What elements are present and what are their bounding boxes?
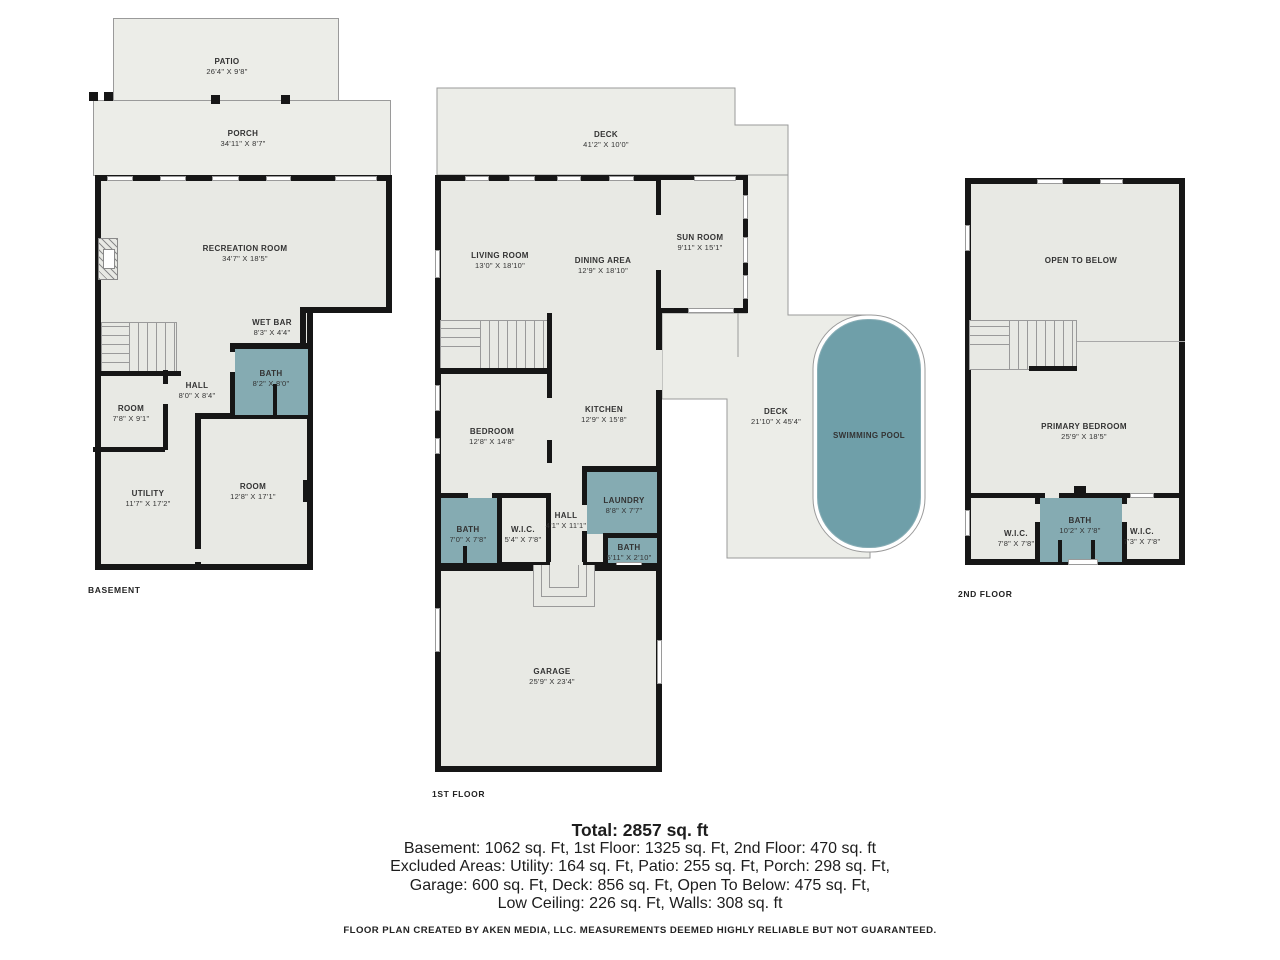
second-bath-label: BATH10'2" X 7'8": [1059, 516, 1100, 536]
door-opening: [1122, 504, 1127, 522]
room-name: BEDROOM: [470, 427, 514, 436]
window-marker: [160, 176, 186, 181]
room-name: BATH: [617, 543, 640, 552]
window-marker: [743, 237, 748, 263]
room-name: PRIMARY BEDROOM: [1041, 422, 1127, 431]
stair-landing: [970, 321, 1009, 345]
garage-label: GARAGE25'9" X 23'4": [529, 667, 575, 687]
window-marker: [965, 225, 970, 251]
wall-segment: [95, 371, 181, 376]
door-opening: [163, 384, 168, 404]
window-marker: [435, 608, 440, 652]
sun-room-label: SUN ROOM9'11" X 15'1": [677, 233, 724, 253]
room-dims: 8'2" X 8'0": [253, 379, 290, 389]
window-marker: [1130, 493, 1154, 498]
wall-segment: [497, 493, 502, 565]
room-name: RECREATION ROOM: [203, 244, 288, 253]
room-name: UTILITY: [132, 489, 165, 498]
stair-landing: [102, 323, 129, 372]
floor-plan-canvas: PATIO26'4" X 9'8" PORCH34'11" X 8'7" REC…: [0, 0, 1280, 960]
room-dims: 7'3" X 7'8": [1124, 537, 1161, 547]
primary-bedroom-label: PRIMARY BEDROOM25'9" X 18'5": [1041, 422, 1127, 442]
room-name: W.I.C.: [1130, 527, 1154, 536]
room-name: DECK: [764, 407, 788, 416]
room-dims: 10'2" X 7'8": [1059, 526, 1100, 536]
window-marker: [1068, 559, 1098, 565]
door-opening: [656, 350, 662, 390]
room-dims: 25'9" X 23'4": [529, 677, 575, 687]
window-marker: [266, 176, 291, 181]
window-marker: [212, 176, 239, 181]
summary-total: Total: 2857 sq. ft: [0, 821, 1280, 840]
basement-room1-label: ROOM7'8" X 9'1": [113, 404, 150, 424]
stair-landing: [441, 321, 480, 347]
stair-treads: [480, 321, 547, 371]
deck-top-label: DECK41'2" X 10'0": [583, 130, 629, 150]
room-dims: 34'7" X 18'5": [203, 254, 288, 264]
window-marker: [107, 176, 133, 181]
wic-left-label: W.I.C.7'8" X 7'8": [998, 529, 1035, 549]
first-bath-label: BATH7'0" X 7'8": [450, 525, 487, 545]
wall-segment: [1029, 366, 1077, 371]
room-dims: 5'4" X 7'8": [505, 535, 542, 545]
bedroom-label: BEDROOM12'8" X 14'8": [469, 427, 515, 447]
window-marker: [557, 176, 581, 181]
window-marker: [657, 640, 662, 684]
room-dims: 7'8" X 7'8": [998, 539, 1035, 549]
room-name: BATH: [1068, 516, 1091, 525]
living-room-label: LIVING ROOM13'0" X 18'10": [471, 251, 529, 271]
first-bath2-label: BATH5'11" X 2'10": [606, 543, 651, 563]
summary-line: Low Ceiling: 226 sq. Ft, Walls: 308 sq. …: [0, 895, 1280, 913]
wall-segment: [303, 480, 313, 502]
room-dims: 26'4" X 9'8": [206, 67, 247, 77]
window-marker: [1037, 179, 1063, 184]
disclaimer-text: FLOOR PLAN CREATED BY AKEN MEDIA, LLC. M…: [0, 925, 1280, 936]
room-dims: 11'7" X 17'2": [125, 499, 170, 509]
dining-area-label: DINING AREA12'9" X 18'10": [575, 256, 631, 276]
door-opening: [547, 398, 552, 440]
kitchen-label: KITCHEN12'9" X 15'8": [581, 405, 627, 425]
basement-hall-label: HALL8'0" X 8'4": [179, 381, 216, 401]
room-name: BATH: [259, 369, 282, 378]
window-marker: [609, 176, 634, 181]
wall-segment: [547, 313, 552, 463]
wet-bar-label: WET BAR8'3" X 4'4": [252, 318, 292, 338]
room-dims: 12'9" X 15'8": [581, 415, 627, 425]
room-name: KITCHEN: [585, 405, 623, 414]
room-dims: 8'3" X 4'4": [252, 328, 292, 338]
room-dims: 25'9" X 18'5": [1041, 432, 1127, 442]
stair-treads: [1009, 321, 1076, 369]
basement-bath-label: BATH8'2" X 8'0": [253, 369, 290, 389]
room-name: SWIMMING POOL: [833, 431, 905, 440]
basement-room2-label: ROOM12'8" X 17'1": [230, 482, 276, 502]
wall-segment: [163, 370, 168, 450]
room-dims: 41'2" X 10'0": [583, 140, 629, 150]
wall-segment: [300, 307, 306, 349]
room-dims: 12'9" X 18'10": [575, 266, 631, 276]
room-dims: 12'8" X 14'8": [469, 437, 515, 447]
room-dims: 21'10" X 45'4": [751, 417, 801, 427]
window-marker: [435, 250, 440, 278]
utility-label: UTILITY11'7" X 17'2": [125, 489, 170, 509]
room-dims: 12'8" X 17'1": [230, 492, 276, 502]
first-hall-label: HALL4'1" X 11'1": [546, 511, 587, 531]
stair-treads: [129, 323, 176, 372]
summary-line: Garage: 600 sq. Ft, Deck: 856 sq. Ft, Op…: [0, 877, 1280, 895]
wic-right-label: W.I.C.7'3" X 7'8": [1124, 527, 1161, 547]
window-marker: [688, 308, 734, 313]
room-name: ROOM: [240, 482, 266, 491]
window-marker: [965, 510, 970, 536]
window-marker: [1100, 179, 1123, 184]
porch-post: [281, 95, 290, 104]
room-name: W.I.C.: [1004, 529, 1028, 538]
summary-line: Basement: 1062 sq. Ft, 1st Floor: 1325 s…: [0, 840, 1280, 858]
room-dims: 9'11" X 15'1": [677, 243, 724, 253]
room-dims: 5'11" X 2'10": [606, 553, 651, 563]
window-marker: [743, 195, 748, 219]
deck-right-label: DECK21'10" X 45'4": [751, 407, 801, 427]
room-name: LAUNDRY: [603, 496, 644, 505]
wall-segment: [463, 546, 467, 565]
room-name: BATH: [456, 525, 479, 534]
window-marker: [743, 275, 748, 299]
summary-block: Total: 2857 sq. ft Basement: 1062 sq. Ft…: [0, 821, 1280, 936]
window-marker: [694, 176, 736, 181]
porch-post: [89, 92, 98, 101]
room-dims: 7'0" X 7'8": [450, 535, 487, 545]
wall-segment: [1058, 540, 1062, 562]
patio-label: PATIO26'4" X 9'8": [206, 57, 247, 77]
room-name: WET BAR: [252, 318, 292, 327]
swimming-pool-label: SWIMMING POOL: [833, 431, 905, 441]
window-marker: [509, 176, 535, 181]
laundry-label: LAUNDRY8'8" X 7'7": [603, 496, 644, 516]
room-name: OPEN TO BELOW: [1045, 256, 1117, 265]
room-dims: 4'1" X 11'1": [546, 521, 587, 531]
room-name: PORCH: [228, 129, 259, 138]
room-dims: 8'0" X 8'4": [179, 391, 216, 401]
porch-post: [104, 92, 113, 101]
wall-segment: [1074, 486, 1086, 494]
open-floor-seam: [101, 305, 300, 315]
window-marker: [465, 176, 489, 181]
door-opening: [1035, 504, 1040, 522]
room-dims: 8'8" X 7'7": [603, 506, 644, 516]
window-marker: [435, 385, 440, 411]
porch-label: PORCH34'11" X 8'7": [220, 129, 265, 149]
first-floor-tag: 1ST FLOOR: [432, 789, 485, 799]
wall-segment: [437, 368, 550, 374]
room-name: ROOM: [118, 404, 144, 413]
room-name: LIVING ROOM: [471, 251, 529, 260]
room-name: GARAGE: [533, 667, 570, 676]
room-name: PATIO: [214, 57, 239, 66]
window-marker: [435, 438, 440, 454]
room-name: SUN ROOM: [677, 233, 724, 242]
open-to-below-label: OPEN TO BELOW: [1045, 256, 1117, 266]
room-name: HALL: [186, 381, 209, 390]
room-name: DINING AREA: [575, 256, 631, 265]
door-opening: [655, 215, 663, 270]
second-floor-tag: 2ND FLOOR: [958, 589, 1013, 599]
fireplace-box: [103, 249, 115, 269]
room-dims: 13'0" X 18'10": [471, 261, 529, 271]
porch-post: [211, 95, 220, 104]
room-name: DECK: [594, 130, 618, 139]
room-name: HALL: [555, 511, 578, 520]
basement-floor-tag: BASEMENT: [88, 585, 141, 595]
wall-segment: [195, 415, 201, 565]
door-opening: [195, 549, 201, 562]
entry-steps: [549, 565, 579, 588]
room-dims: 34'11" X 8'7": [220, 139, 265, 149]
summary-line: Excluded Areas: Utility: 164 sq. Ft, Pat…: [0, 858, 1280, 876]
window-marker: [335, 176, 377, 181]
room-dims: 7'8" X 9'1": [113, 414, 150, 424]
room-name: W.I.C.: [511, 525, 535, 534]
wic-label: W.I.C.5'4" X 7'8": [505, 525, 542, 545]
recreation-room-label: RECREATION ROOM34'7" X 18'5": [203, 244, 288, 264]
wall-segment: [93, 447, 165, 452]
